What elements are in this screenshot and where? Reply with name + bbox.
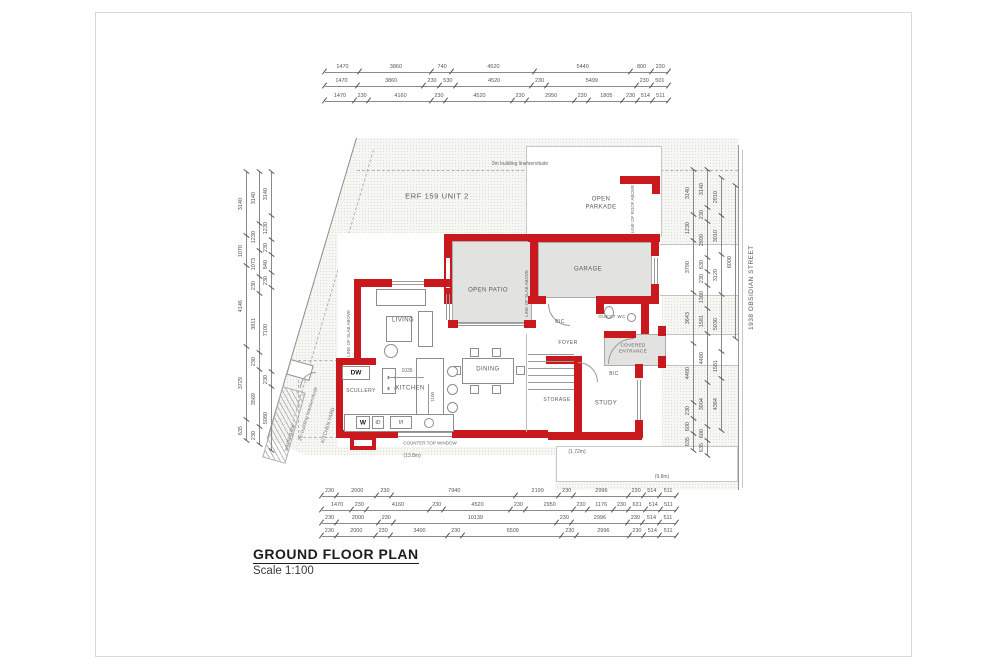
dim-value: 3400 xyxy=(413,529,425,535)
dim-value: 2000 xyxy=(352,516,364,522)
dim-segment: 3643 xyxy=(684,293,694,344)
dim-value: 230 xyxy=(325,529,334,535)
slab-above-left-label: LINE OF SLAB ABOVE xyxy=(346,310,351,357)
dim-value: 1581 xyxy=(700,315,706,327)
dim-value: 1176 xyxy=(595,503,607,509)
dim-value: 1230 xyxy=(686,222,692,234)
dim-segment: 1230 xyxy=(262,216,272,241)
wall xyxy=(652,176,660,194)
dim-value: 511 xyxy=(664,529,673,535)
dim-1035-line xyxy=(390,377,424,378)
dim-segment: 2950 xyxy=(526,501,574,511)
wall xyxy=(635,420,643,438)
fridge-label: f/f xyxy=(399,420,403,426)
dim-segment: 4520 xyxy=(444,501,511,511)
dim-segment: 5440 xyxy=(535,63,631,73)
wall xyxy=(424,279,451,287)
dim-row-top-1: 1470386074045205440800230 xyxy=(325,63,668,73)
dim-value: 635 xyxy=(700,443,706,452)
bar-stool xyxy=(447,366,458,377)
length-9-8: (9.8m) xyxy=(655,474,669,480)
wall xyxy=(528,234,660,242)
dim-value: 1230 xyxy=(264,222,270,234)
dim-segment: 3904 xyxy=(698,383,708,427)
patio-slider-line xyxy=(458,322,524,326)
dim-segment: 10139 xyxy=(394,514,557,524)
dim-row-top-3: 1470230416023045202302950230180523051451… xyxy=(325,92,668,102)
street-boundary-line-2 xyxy=(742,150,743,488)
wall xyxy=(354,279,361,365)
page-scale: Scale 1:100 xyxy=(253,565,314,577)
wall xyxy=(356,279,392,287)
dim-value: 511 xyxy=(664,503,673,509)
dim-segment: 1470 xyxy=(322,501,352,511)
dishwasher-label: DW xyxy=(351,370,362,377)
dim-value: 4364 xyxy=(714,398,720,410)
dim-value: 230 xyxy=(626,94,635,100)
dim-segment: 3400 xyxy=(391,527,449,537)
dim-value: 1470 xyxy=(335,79,347,85)
dim-segment: 1805 xyxy=(589,92,623,102)
dim-segment: 511 xyxy=(660,514,676,524)
dim-value: 230 xyxy=(632,489,641,495)
dim-segment: 6000 xyxy=(726,186,736,338)
dim-segment: 5080 xyxy=(262,387,272,450)
dim-value: 6509 xyxy=(507,529,519,535)
dim-value: 800 xyxy=(637,65,646,71)
building-line-top-label: 3m building line/servitude xyxy=(492,161,548,167)
open-parkade-line-1: OPEN xyxy=(585,197,616,205)
dim-segment: 2996 xyxy=(577,527,629,537)
dim-value: 4520 xyxy=(488,79,500,85)
dim-segment: 1176 xyxy=(588,501,614,511)
dim-value: 4520 xyxy=(473,94,485,100)
dim-value: 230 xyxy=(380,489,389,495)
dim-segment: 4520 xyxy=(446,92,513,102)
room-label-living: LIVING xyxy=(392,317,414,325)
dim-value: 514 xyxy=(648,529,657,535)
basin xyxy=(627,313,636,322)
dim-value: 230 xyxy=(252,281,258,290)
dim-value: 2000 xyxy=(351,489,363,495)
room-label-open-patio: OPEN PATIO xyxy=(468,287,508,295)
stove xyxy=(382,368,396,394)
dim-value: 1581 xyxy=(714,360,720,372)
dim-value: 230 xyxy=(514,503,523,509)
dining-chair xyxy=(492,348,501,357)
length-13-8: (13.8m) xyxy=(403,453,420,459)
bar-stool xyxy=(447,402,458,413)
dim-value: 5440 xyxy=(577,65,589,71)
dim-segment: 5030 xyxy=(712,295,722,352)
dim-value: 511 xyxy=(664,489,673,495)
study-window xyxy=(637,380,641,420)
room-label-garage: GARAGE xyxy=(574,266,602,274)
dim-value: 2950 xyxy=(544,503,556,509)
wall xyxy=(641,304,649,334)
dim-segment: 2996 xyxy=(574,487,628,497)
room-label-covered-entrance: COVERED ENTRANCE xyxy=(619,342,647,353)
room-label-bic-1: BIC xyxy=(555,319,565,325)
dim-segment: 4146 xyxy=(237,266,247,347)
dim-value: 2199 xyxy=(532,489,544,495)
room-label-dining: DINING xyxy=(476,366,499,374)
dim-segment: 3569 xyxy=(250,370,260,427)
dim-value: 3860 xyxy=(385,79,397,85)
dim-segment: 3140 xyxy=(237,172,247,236)
dim-segment: 635 xyxy=(684,434,694,450)
dim-segment: 4364 xyxy=(712,379,722,430)
dim-segment: 635 xyxy=(698,441,708,455)
open-parkade-line-2: PARKADE xyxy=(585,204,616,212)
garage-door-line xyxy=(654,258,658,284)
dim-col-left-3: 3140123023084023071002305080 xyxy=(262,172,272,450)
roof-above-label: LINE OF ROOF ABOVE xyxy=(630,185,635,233)
dim-value: 230 xyxy=(434,94,443,100)
dim-value: 1470 xyxy=(334,94,346,100)
dim-value: 840 xyxy=(264,260,270,269)
counter-top-window-line xyxy=(398,432,452,437)
dim-value: 230 xyxy=(355,503,364,509)
dim-value: 5030 xyxy=(714,318,720,330)
dryer-label: tD xyxy=(376,420,381,426)
dim-value: 10139 xyxy=(468,516,483,522)
counter-top-window-label: COUNTER TOP WINDOW xyxy=(403,441,457,446)
wall xyxy=(658,356,666,368)
dim-segment: 3010 xyxy=(712,216,722,255)
dim-value: 230 xyxy=(325,516,334,522)
dim-value: 230 xyxy=(515,94,524,100)
dim-value: 1073 xyxy=(252,258,258,270)
dim-value: 7940 xyxy=(448,489,460,495)
dim-segment: 2890 xyxy=(698,222,708,258)
erf-label: ERF 159 UNIT 2 xyxy=(405,192,469,201)
dim-value: 3860 xyxy=(390,65,402,71)
dim-value: 514 xyxy=(647,516,656,522)
dim-value: 230 xyxy=(578,94,587,100)
dim-value: 511 xyxy=(656,94,665,100)
wall xyxy=(524,320,536,328)
dim-segment: 1073 xyxy=(250,251,260,277)
street-boundary-line xyxy=(738,145,739,490)
dim-segment: 1470 xyxy=(325,77,358,87)
dim-value: 1470 xyxy=(331,503,343,509)
dim-row-bottom-2: 1470230416023045202302950230117623063151… xyxy=(322,501,676,511)
dim-value: 530 xyxy=(443,79,452,85)
dim-row-top-2: 1470386023053045202305499230501 xyxy=(325,77,668,87)
side-table xyxy=(384,344,398,358)
dim-segment: 230 xyxy=(652,63,668,73)
dim-value: 635 xyxy=(239,426,245,435)
dim-segment: 4520 xyxy=(452,63,534,73)
dim-value: 600 xyxy=(686,422,692,431)
dim-value: 230 xyxy=(617,503,626,509)
dim-value: 5499 xyxy=(586,79,598,85)
dim-1035-label: 1035 xyxy=(401,368,412,374)
dim-segment: 4160 xyxy=(369,92,432,102)
dim-segment: 511 xyxy=(653,92,668,102)
sofa-side xyxy=(418,311,433,347)
dim-value: 230 xyxy=(382,516,391,522)
dim-segment: 1230 xyxy=(250,224,260,252)
dim-value: 3904 xyxy=(700,398,706,410)
wall xyxy=(604,331,636,338)
dim-value: 4160 xyxy=(394,94,406,100)
dim-segment: 2000 xyxy=(337,514,378,524)
floor-plan-page: 1035 1100 LIVING DINING KITCHEN SCULLERY… xyxy=(0,0,1000,667)
dim-value: 3140 xyxy=(686,187,692,199)
dim-segment: 3729 xyxy=(237,347,247,421)
room-label-guest-wc: GUEST WC xyxy=(598,314,625,320)
dim-value: 4480 xyxy=(700,352,706,364)
foyer-dining-line xyxy=(526,334,527,432)
dim-value: 631 xyxy=(632,503,641,509)
dim-value: 230 xyxy=(560,516,569,522)
page-title: GROUND FLOOR PLAN xyxy=(253,546,419,564)
room-label-bic-2: BIC xyxy=(609,371,619,377)
dim-value: 3643 xyxy=(686,312,692,324)
sink xyxy=(424,418,434,428)
dim-value: 230 xyxy=(358,94,367,100)
dim-segment: 631 xyxy=(629,501,646,511)
dim-col-right-1: 31401230379036434480230600635 xyxy=(684,170,694,450)
dim-value: 230 xyxy=(432,503,441,509)
dim-segment: 501 xyxy=(652,77,668,87)
wall xyxy=(651,242,659,256)
dim-value: 3140 xyxy=(239,198,245,210)
street-label: 1938 OBSIDIAN STREET xyxy=(748,200,755,330)
room-label-scullery: SCULLERY xyxy=(346,388,376,394)
dim-value: 230 xyxy=(379,529,388,535)
wall xyxy=(548,432,642,440)
dim-segment: 3811 xyxy=(250,294,260,354)
dim-value: 1470 xyxy=(336,65,348,71)
dim-segment: 2199 xyxy=(516,487,559,497)
wall xyxy=(596,296,659,304)
dining-chair xyxy=(470,348,479,357)
dim-col-right-3: 291030103120503015814364 xyxy=(712,178,722,430)
dim-value: 3140 xyxy=(700,183,706,195)
dim-value: 2950 xyxy=(545,94,557,100)
dim-value: 1070 xyxy=(239,245,245,257)
wall xyxy=(596,304,604,314)
washer-label: W xyxy=(360,420,366,427)
wall xyxy=(635,364,643,378)
dim-col-right-2: 314023028906302301300158144803904600635 xyxy=(698,170,708,455)
dining-chair xyxy=(470,385,479,394)
dim-value: 6000 xyxy=(728,256,734,268)
dim-value: 514 xyxy=(647,489,656,495)
dim-segment: 3140 xyxy=(684,170,694,215)
dim-value: 230 xyxy=(427,79,436,85)
dim-1100-line xyxy=(428,384,429,414)
dim-segment: 1070 xyxy=(237,236,247,266)
dim-segment: 3140 xyxy=(262,172,272,216)
dim-value: 2996 xyxy=(597,529,609,535)
dim-value: 3140 xyxy=(252,192,258,204)
open-patio-fill xyxy=(452,241,532,324)
dim-value: 1300 xyxy=(700,291,706,303)
covered-entrance-line-1: COVERED xyxy=(619,342,647,348)
dim-value: 2000 xyxy=(350,529,362,535)
dining-chair xyxy=(492,385,501,394)
dim-value: 514 xyxy=(649,503,658,509)
staircase xyxy=(528,354,574,394)
dim-col-left-2: 31401230107323038112303569230 xyxy=(250,172,260,444)
dim-value: 3569 xyxy=(252,393,258,405)
living-window xyxy=(392,281,424,285)
room-label-foyer: FOYER xyxy=(558,340,577,346)
dim-segment: 7940 xyxy=(392,487,516,497)
dim-segment: 1230 xyxy=(684,215,694,240)
dim-segment: 2000 xyxy=(337,527,376,537)
dim-segment: 3140 xyxy=(698,170,708,208)
dim-value: 3790 xyxy=(686,261,692,273)
dim-segment: 1470 xyxy=(325,63,360,73)
dim-segment: 5499 xyxy=(547,77,637,87)
dim-value: 4160 xyxy=(392,503,404,509)
dim-value: 230 xyxy=(576,503,585,509)
wall xyxy=(528,296,546,304)
dim-value: 3010 xyxy=(714,230,720,242)
dining-chair xyxy=(516,366,525,375)
dim-value: 4520 xyxy=(487,65,499,71)
dim-segment: 2910 xyxy=(712,178,722,216)
dim-segment: 4160 xyxy=(367,501,430,511)
dim-value: 3140 xyxy=(264,188,270,200)
dim-segment: 3860 xyxy=(360,63,432,73)
wall xyxy=(452,430,548,438)
room-label-open-parkade: OPEN PARKADE xyxy=(585,197,616,212)
dim-value: 3811 xyxy=(252,318,258,330)
dim-value: 5080 xyxy=(264,412,270,424)
room-label-study: STUDY xyxy=(595,400,617,408)
bar-stool xyxy=(447,384,458,395)
sofa xyxy=(376,289,426,306)
dim-segment: 3140 xyxy=(250,172,260,224)
dim-value: 3729 xyxy=(239,377,245,389)
dim-value: 230 xyxy=(686,406,692,415)
dim-segment: 4480 xyxy=(684,344,694,404)
dim-segment: 4480 xyxy=(698,334,708,383)
dim-value: 501 xyxy=(655,79,664,85)
dim-value: 2910 xyxy=(714,191,720,203)
dim-col-left-1: 3140107041463729635 xyxy=(237,172,247,440)
dim-segment: 1300 xyxy=(698,286,708,309)
dim-value: 2996 xyxy=(595,489,607,495)
dim-value: 230 xyxy=(631,516,640,522)
dim-value: 3120 xyxy=(714,269,720,281)
dim-segment: 4520 xyxy=(456,77,532,87)
dim-value: 230 xyxy=(656,65,665,71)
dim-segment: 6509 xyxy=(463,527,562,537)
dim-segment: 2000 xyxy=(337,487,377,497)
dim-value: 230 xyxy=(632,529,641,535)
dim-value: 1230 xyxy=(252,231,258,243)
dim-value: 230 xyxy=(325,489,334,495)
dim-segment: 1581 xyxy=(698,309,708,334)
dim-value: 2996 xyxy=(594,516,606,522)
room-label-storage: STORAGE xyxy=(543,397,570,403)
dim-segment: 2996 xyxy=(572,514,628,524)
parkade-area xyxy=(526,146,662,237)
dim-segment: 635 xyxy=(237,420,247,440)
wall xyxy=(530,241,538,301)
scullery-outer-box xyxy=(350,436,376,450)
dim-value: 230 xyxy=(640,79,649,85)
dim-value: 230 xyxy=(451,529,460,535)
dim-value: 740 xyxy=(438,65,447,71)
length-1-72: (1.72m) xyxy=(568,449,585,455)
dim-1100-label: 1100 xyxy=(430,392,435,402)
dim-value: 230 xyxy=(535,79,544,85)
dim-segment: 511 xyxy=(661,501,676,511)
dim-col-street: 6000 xyxy=(726,186,736,338)
dim-value: 7100 xyxy=(264,324,270,336)
wall xyxy=(448,320,458,328)
dim-segment: 2950 xyxy=(527,92,575,102)
dim-segment: 3120 xyxy=(712,255,722,295)
dim-segment: 511 xyxy=(660,487,676,497)
dim-row-bottom-4: 2302000230340023065092302996230514511 xyxy=(322,527,676,537)
dim-value: 2890 xyxy=(700,234,706,246)
dim-value: 4480 xyxy=(686,367,692,379)
dim-value: 514 xyxy=(641,94,650,100)
dim-segment: 3790 xyxy=(684,241,694,293)
dim-segment: 1470 xyxy=(325,92,355,102)
dim-segment: 1581 xyxy=(712,352,722,378)
dim-segment: 230 xyxy=(250,427,260,444)
dim-segment: 3860 xyxy=(358,77,425,87)
dim-row-bottom-1: 2302000230794021992302996230514511 xyxy=(322,487,676,497)
dim-value: 4520 xyxy=(471,503,483,509)
dim-value: 4146 xyxy=(239,300,245,312)
wall xyxy=(658,326,666,336)
dim-value: 230 xyxy=(565,529,574,535)
wall xyxy=(444,234,532,241)
covered-entrance-line-2: ENTRANCE xyxy=(619,348,647,354)
dim-value: 511 xyxy=(664,516,673,522)
dim-segment: 511 xyxy=(660,527,676,537)
dim-value: 230 xyxy=(264,375,270,384)
dim-row-bottom-3: 2302000230101392302996230514511 xyxy=(322,514,676,524)
dim-value: 230 xyxy=(252,357,258,366)
dim-segment: 7100 xyxy=(262,288,272,371)
patio-west-window xyxy=(446,294,450,320)
dim-value: 230 xyxy=(252,431,258,440)
slab-above-right-label: LINE OF SLAB ABOVE xyxy=(524,270,529,317)
room-label-kitchen: KITCHEN xyxy=(395,385,424,393)
dim-value: 635 xyxy=(686,437,692,446)
dim-value: 230 xyxy=(562,489,571,495)
dim-value: 1805 xyxy=(600,94,612,100)
